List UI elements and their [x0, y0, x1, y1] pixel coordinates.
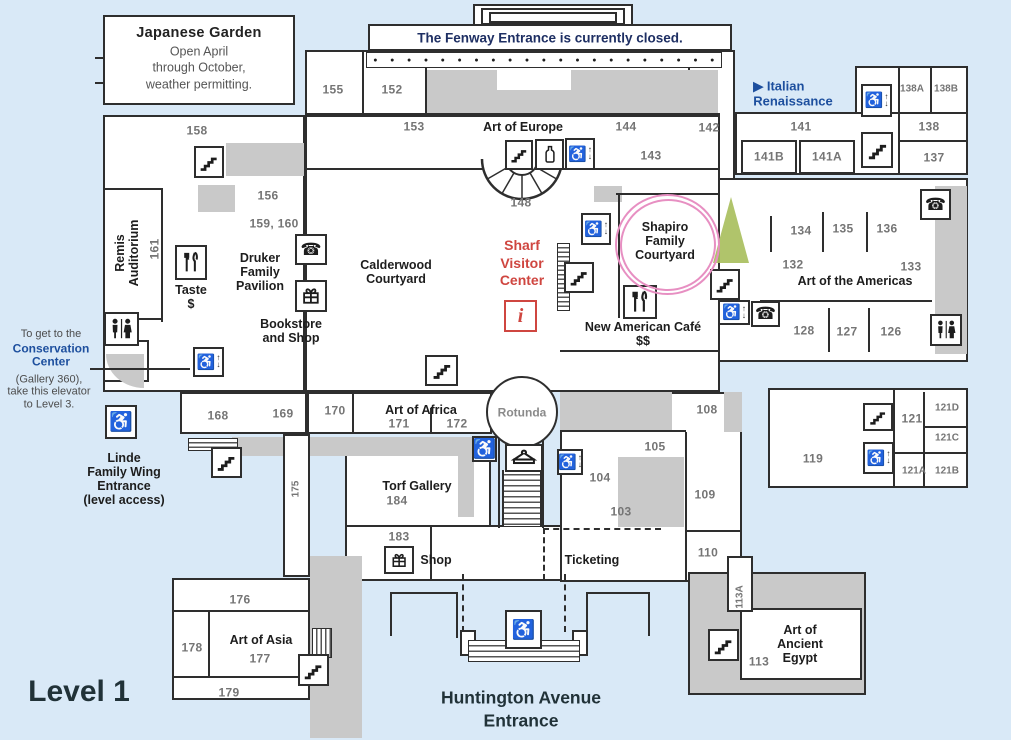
wall-segment: [392, 592, 458, 594]
wall-segment: [687, 530, 742, 532]
wall-segment: [560, 350, 720, 352]
wall-segment: [362, 50, 364, 115]
wheelchair-icon: ♿: [105, 405, 137, 439]
rotunda-label: Rotunda: [498, 406, 547, 419]
wall-segment: [893, 452, 968, 454]
room-103-label: 103: [611, 505, 632, 518]
room-138a-label: 138A: [900, 83, 924, 94]
wall-segment: [586, 592, 650, 594]
room-108-label: 108: [697, 403, 718, 416]
stairs-icon: [194, 146, 224, 178]
column-dot: ●: [542, 57, 546, 64]
art-of-the-americas-label: Art of the Americas: [798, 274, 913, 288]
room-126-label: 126: [881, 325, 902, 338]
column-dot: ●: [592, 57, 596, 64]
column-dot: ●: [676, 57, 680, 64]
shop-icon: [384, 546, 414, 574]
column-dot: ●: [710, 57, 714, 64]
room-143-label: 143: [641, 149, 662, 162]
room-113-label: 113: [749, 655, 769, 668]
grand-staircase: [502, 470, 542, 526]
ticketing-label: Ticketing: [565, 553, 620, 567]
column-dot: ●: [424, 57, 428, 64]
room-142-label: 142: [699, 121, 720, 134]
remis-auditorium-label: Remis Auditorium: [113, 220, 141, 287]
column-dot: ●: [626, 57, 630, 64]
elevator-icon: ♿↑↓: [861, 84, 892, 117]
column-dot: ●: [407, 57, 411, 64]
wall-segment: [95, 57, 105, 59]
wall-segment: [352, 392, 354, 434]
huntington-avenue-entrance-label: Huntington Avenue Entrance: [441, 686, 601, 732]
shop-label: Shop: [420, 553, 451, 567]
room-156-label: 156: [258, 189, 279, 202]
restroom-icon: [930, 314, 962, 346]
phone-icon: ☎: [751, 301, 780, 327]
coat-check-icon: [505, 444, 543, 472]
room-153-label: 153: [404, 120, 425, 133]
column-dot: ●: [474, 57, 478, 64]
room-127-label: 127: [837, 325, 858, 338]
room-136-label: 136: [877, 222, 898, 235]
wall-segment: [866, 212, 868, 252]
wheelchair-icon: ♿: [472, 436, 497, 462]
room-121a-label: 121A: [902, 465, 926, 476]
restroom-icon: [104, 312, 139, 346]
wall-segment: [898, 66, 900, 174]
wall-segment: [868, 308, 870, 352]
room-138b-label: 138B: [934, 83, 958, 94]
room-158-label: 158: [187, 124, 208, 137]
room-148-label: 148: [511, 196, 532, 209]
info-icon: i: [504, 300, 537, 332]
room-110-label: 110: [698, 546, 718, 559]
museum-floor-plan-level-1: ●●●●●●●●●●●●●●●●●●●●● Japanese GardenOpe…: [0, 0, 1011, 740]
wall-segment: [103, 188, 163, 190]
wall-segment: [685, 432, 687, 582]
column-dot: ●: [390, 57, 394, 64]
stairs-icon: [564, 262, 594, 293]
wall-segment: [456, 592, 458, 638]
stairs-icon: [710, 269, 740, 300]
restaurant-icon: [175, 245, 207, 280]
column-dot: ●: [643, 57, 647, 64]
service-area: [560, 392, 672, 432]
wall-segment: [305, 113, 720, 115]
room-155-label: 155: [323, 83, 344, 96]
room-104-label: 104: [590, 471, 611, 484]
sharf-visitor-center-label: Sharf Visitor Center: [500, 237, 544, 290]
stairs-icon: [505, 140, 533, 170]
stairs-icon: [425, 355, 458, 386]
room-128-label: 128: [794, 324, 815, 337]
wall-segment: [425, 68, 427, 115]
service-area: [724, 392, 742, 432]
room-159-160-label: 159, 160: [249, 217, 298, 230]
wall-segment: [923, 426, 968, 428]
room-176-label: 176: [230, 593, 251, 606]
level-1-label: Level 1: [28, 675, 130, 709]
column-dot: ●: [559, 57, 563, 64]
wall-segment: [586, 592, 588, 638]
calderwood-courtyard-label: Calderwood Courtyard: [360, 258, 432, 286]
phone-icon: ☎: [295, 234, 327, 265]
japanese-garden-title: Japanese Garden: [136, 25, 261, 41]
wheelchair-icon: ♿: [505, 610, 542, 649]
service-area: [497, 70, 571, 90]
wall-segment: [305, 168, 490, 170]
room-105-label: 105: [645, 440, 666, 453]
room-175-label: 175: [290, 481, 301, 498]
room-109-label: 109: [695, 488, 716, 501]
wall-segment: [560, 430, 686, 432]
shop-icon: [295, 280, 327, 312]
wall-segment: [828, 308, 830, 352]
room-168-label: 168: [208, 409, 229, 422]
column-dot: ●: [525, 57, 529, 64]
colonnade: ●●●●●●●●●●●●●●●●●●●●●: [366, 52, 722, 68]
stairs-icon: [211, 447, 242, 478]
linde-family-wing-entrance-label: Linde Family Wing Entrance (level access…: [83, 451, 164, 507]
room-141-label: 141: [791, 120, 812, 133]
room-152-label: 152: [382, 83, 403, 96]
service-area: [427, 70, 718, 113]
room-121c-label: 121C: [935, 432, 959, 443]
room-121b-label: 121B: [935, 465, 959, 476]
japanese-garden-note: Open April through October, weather perm…: [146, 44, 252, 93]
room-179-label: 179: [219, 686, 240, 699]
art-of-ancient-egypt-label: Art of Ancient Egypt: [777, 623, 823, 665]
room-132-label: 132: [783, 258, 804, 271]
wall-segment: [930, 66, 932, 114]
wall-segment: [770, 216, 772, 252]
room-133-label: 133: [901, 260, 922, 273]
room-113a-label: 113A: [734, 585, 745, 608]
elevator-icon: ♿↑↓: [718, 300, 750, 325]
room-172-label: 172: [447, 417, 468, 430]
room-184-label: 184: [387, 494, 408, 507]
column-dot: ●: [693, 57, 697, 64]
dashed-line: [543, 528, 661, 530]
wall-segment: [822, 212, 824, 252]
service-area: [198, 185, 235, 212]
elevator-icon: ♿↑↓: [863, 442, 894, 474]
stairs-icon: [863, 403, 893, 431]
stairs-icon: [298, 654, 329, 686]
italian-renaissance-label: ▶ Italian Renaissance: [753, 79, 833, 108]
room-135-label: 135: [833, 222, 854, 235]
wall-segment: [208, 612, 210, 678]
wall-segment: [898, 140, 968, 142]
room-177-label: 177: [250, 652, 271, 665]
art-of-asia-label: Art of Asia: [230, 633, 293, 647]
taste-label: Taste $: [175, 283, 207, 311]
room-119-label: 119: [803, 452, 823, 465]
room-134-label: 134: [791, 224, 812, 237]
column-dot: ●: [373, 57, 377, 64]
service-area: [226, 143, 304, 176]
stairs-icon: [708, 629, 739, 661]
bookstore-and-shop-label: Bookstore and Shop: [260, 317, 322, 345]
room-121-label: 121: [902, 412, 923, 425]
conservation-note-line1: To get to the: [21, 328, 82, 340]
column-dot: ●: [441, 57, 445, 64]
column-dot: ●: [575, 57, 579, 64]
corridor-175: [283, 434, 310, 577]
elevator-icon: ♿↑↓: [557, 449, 583, 475]
room-141a-label: 141A: [812, 150, 842, 163]
wall-segment: [172, 676, 310, 678]
phone-icon: ☎: [920, 189, 951, 220]
druker-family-pavilion-label: Druker Family Pavilion: [236, 251, 284, 293]
room-141b-label: 141B: [754, 150, 784, 163]
wall-segment: [498, 432, 500, 528]
art-of-europe-label: Art of Europe: [483, 120, 563, 134]
torf-gallery-label: Torf Gallery: [382, 479, 451, 493]
room-144-label: 144: [616, 120, 637, 133]
column-dot: ●: [508, 57, 512, 64]
room-183-label: 183: [389, 530, 410, 543]
new-american-cafe-label: New American Café $$: [585, 320, 701, 348]
wall-segment: [760, 300, 932, 302]
room-178-label: 178: [182, 641, 203, 654]
elevator-icon: ♿↑↓: [581, 213, 611, 245]
service-area: [232, 437, 458, 456]
wall-segment: [564, 574, 566, 632]
wall-segment: [390, 592, 392, 636]
fenway-portal: [489, 12, 617, 23]
room-138-label: 138: [919, 120, 940, 133]
art-of-africa-label: Art of Africa: [385, 403, 457, 417]
wall-segment: [543, 528, 545, 580]
column-dot: ●: [609, 57, 613, 64]
wall-segment: [462, 574, 464, 632]
column-dot: ●: [660, 57, 664, 64]
room-121d-label: 121D: [935, 402, 959, 413]
wall-segment: [95, 82, 105, 84]
water-fountain-icon: [535, 139, 564, 170]
elevator-icon: ♿↑↓: [565, 138, 595, 170]
conservation-note-line2: (Gallery 360), take this elevator to Lev…: [7, 374, 90, 411]
wall-segment: [172, 610, 310, 612]
wall-segment: [90, 368, 190, 370]
room-171-label: 171: [389, 417, 410, 430]
elevator-icon: ♿↑↓: [193, 347, 224, 377]
room-170-label: 170: [325, 404, 346, 417]
column-dot: ●: [491, 57, 495, 64]
room-161-label: 161: [148, 239, 161, 260]
column-dot: ●: [458, 57, 462, 64]
stairs-icon: [861, 132, 893, 168]
fenway-banner-text: The Fenway Entrance is currently closed.: [417, 30, 683, 45]
room-137-label: 137: [924, 151, 945, 164]
wall-segment: [648, 592, 650, 636]
room-169-label: 169: [273, 407, 294, 420]
conservation-center-label: Conservation Center: [13, 343, 90, 370]
